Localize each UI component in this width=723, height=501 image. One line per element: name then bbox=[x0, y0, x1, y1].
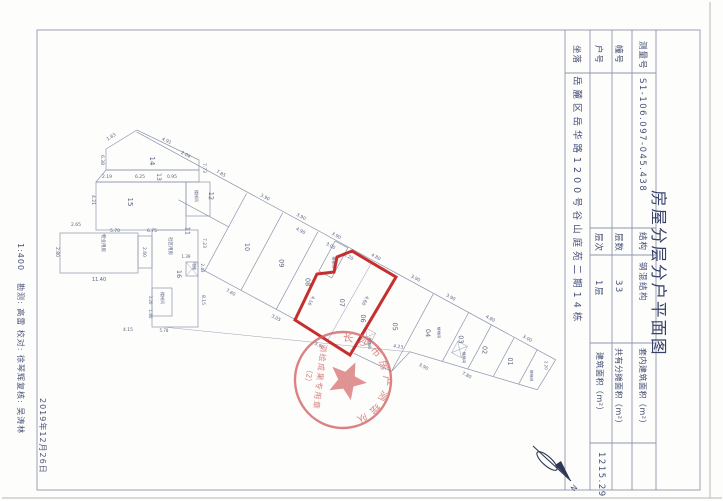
plan-label: 16 bbox=[175, 270, 183, 278]
plan-label: 物业用房 bbox=[100, 234, 107, 252]
plan-label: 0.95 bbox=[167, 174, 177, 180]
plan-label: 2.20 bbox=[544, 361, 549, 370]
scale-text: 1:400 bbox=[16, 243, 25, 271]
plan-label: 楼梯间 bbox=[462, 352, 467, 364]
date-text: 2019年12月26日 bbox=[38, 398, 48, 474]
plan-label: 3.90 bbox=[295, 212, 307, 222]
surveyor-stamp: 长沙市房产测绘队 测绘成果专用章 （2） bbox=[290, 326, 400, 433]
plan-label: 1.80 bbox=[148, 310, 153, 319]
scanned-floor-plan-sheet: 房屋分层分户平面图 测量号 S1-106.097-045.438 幢号 户号 坐… bbox=[0, 0, 723, 501]
plan-label: 社区用房 bbox=[167, 237, 174, 255]
plan-label: 09 bbox=[277, 259, 285, 267]
floor-value: 1层 bbox=[593, 280, 603, 297]
floor-label: 层次 bbox=[593, 233, 604, 252]
floors-label: 层数 bbox=[613, 233, 624, 252]
plan-label: 楼梯间 bbox=[160, 292, 166, 304]
total-area-label: 建筑面积（m²） bbox=[595, 352, 605, 415]
plan-label: 4.21 bbox=[90, 195, 96, 205]
plan-label: 2.60 bbox=[141, 247, 147, 257]
plan-label: 电梯 bbox=[192, 262, 197, 270]
plan-label: 02 bbox=[481, 346, 489, 354]
north-arrowhead-icon bbox=[555, 461, 571, 481]
unit-no-label: 户号 bbox=[593, 45, 604, 64]
credits-text: 勘测: 高雷 校对: 徐琴辉复核: 吴涛林 bbox=[16, 283, 26, 434]
title-block-text: 房屋分层分户平面图 测量号 S1-106.097-045.438 幢号 户号 坐… bbox=[571, 41, 668, 498]
plan-label: 04 bbox=[424, 329, 432, 337]
plan-label: 4.15 bbox=[123, 327, 133, 333]
plan-label: 12 bbox=[207, 192, 215, 200]
north-arrow: N bbox=[533, 446, 579, 493]
location-value: 岳麓区岳华路1200号谷山庭苑二期14栋 bbox=[571, 76, 583, 325]
structure-value: 钢混结构 bbox=[637, 262, 648, 302]
plan-label: 2.80 bbox=[54, 247, 60, 257]
building-plan: 121110090807060504030201楼梯间楼梯间楼梯间楼梯间楼梯间2… bbox=[54, 127, 559, 451]
stamp-line2: （2） bbox=[303, 365, 314, 386]
plan-label: 3.05 bbox=[270, 313, 282, 323]
plan-label: 2.43 bbox=[200, 264, 205, 273]
plan-label: 7.60 bbox=[225, 288, 237, 298]
plan-label: 2.65 bbox=[71, 222, 81, 228]
floors-value: 33 bbox=[613, 280, 623, 294]
plan-label: 4.80 bbox=[484, 314, 496, 324]
plan-label: 07 bbox=[338, 299, 346, 307]
plan-label: 5.78 bbox=[160, 328, 169, 333]
plan-label: 11.40 bbox=[92, 277, 106, 283]
plan-label: 03 bbox=[457, 335, 465, 343]
margin-annotations: 1:400 勘测: 高雷 校对: 徐琴辉复核: 吴涛林 2019年12月26日 bbox=[16, 243, 48, 474]
sheet-title: 房屋分层分户平面图 bbox=[649, 190, 668, 357]
total-area-value: 1215.29 bbox=[596, 452, 606, 498]
plan-label: 3.90 bbox=[259, 193, 271, 203]
inner-area-label: 套内建筑面积（m²） bbox=[638, 348, 648, 428]
north-label: N bbox=[569, 483, 579, 493]
stamp-star-icon bbox=[329, 360, 370, 402]
plan-label: 4.23 bbox=[393, 343, 404, 350]
left-cluster-outlines bbox=[60, 130, 410, 352]
plan-label: 1.63 bbox=[106, 132, 118, 143]
plan-label: 7.80 bbox=[461, 370, 473, 380]
plan-label: 6.38 bbox=[99, 155, 105, 165]
survey-no-value: S1-106.097-045.438 bbox=[637, 78, 647, 192]
building-no-label: 幢号 bbox=[613, 45, 624, 64]
plan-label: 楼梯间 bbox=[194, 190, 200, 202]
plan-label: 楼梯间 bbox=[436, 327, 441, 339]
plan-label: 01 bbox=[506, 357, 514, 365]
plan-label: 6.25 bbox=[135, 174, 145, 180]
plan-label: 6.75 bbox=[147, 228, 157, 234]
plan-label: 1.39 bbox=[182, 254, 191, 259]
plan-labels: 141315社区用房16物业用房楼梯间楼梯间电梯2.196.250.951.63… bbox=[54, 132, 404, 351]
plan-label: 3.90 bbox=[418, 362, 430, 372]
plan-label: 3.90 bbox=[330, 231, 342, 241]
plan-label: 2.19 bbox=[102, 174, 112, 180]
plan-label: 7.73 bbox=[201, 163, 207, 173]
shared-area-label: 共有分摊面积（m²） bbox=[614, 348, 624, 428]
plan-label: 05 bbox=[391, 323, 399, 331]
survey-no-label: 测量号 bbox=[637, 41, 647, 70]
plan-label: 10 bbox=[243, 243, 251, 251]
floor-plan-drawing: 房屋分层分户平面图 测量号 S1-106.097-045.438 幢号 户号 坐… bbox=[0, 0, 723, 501]
plan-label: 5.70 bbox=[110, 228, 120, 234]
plan-label: 3.90 bbox=[445, 293, 457, 303]
plan-label: 楼梯间 bbox=[529, 370, 534, 382]
plan-label: 7.23 bbox=[201, 238, 207, 248]
plan-label: 4.60 bbox=[360, 295, 370, 307]
plan-label: 13 bbox=[155, 173, 162, 181]
structure-label: 结构 bbox=[637, 232, 648, 251]
plan-label: 06 bbox=[359, 314, 367, 322]
plan-label: 3.20 bbox=[148, 296, 153, 305]
location-label: 坐落 bbox=[571, 45, 582, 64]
plan-label: 14 bbox=[148, 157, 156, 166]
plan-label: 3.90 bbox=[410, 274, 422, 284]
plan-label: 15 bbox=[126, 198, 134, 207]
plan-label: 8.15 bbox=[200, 295, 206, 305]
plan-label: 11 bbox=[183, 227, 191, 235]
plan-label: 4.80 bbox=[370, 252, 382, 262]
plan-label: 4.90 bbox=[295, 226, 307, 236]
